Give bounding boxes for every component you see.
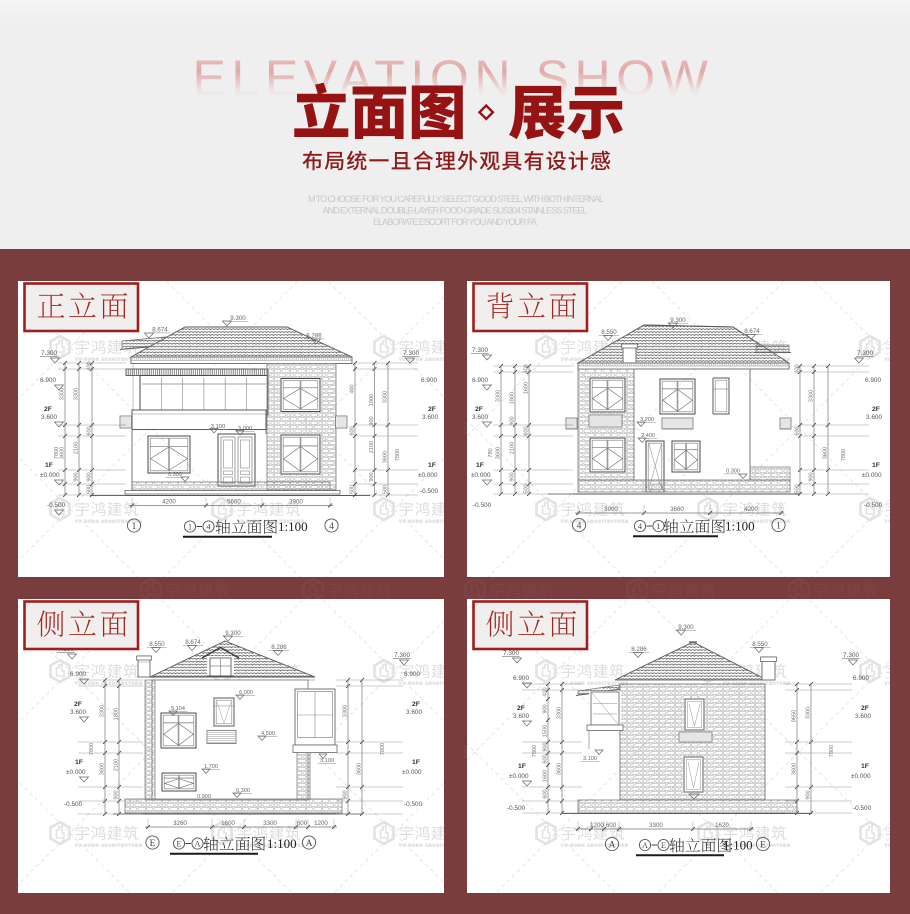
svg-text:7800: 7800 [54, 447, 60, 459]
svg-text:8.674: 8.674 [152, 327, 168, 334]
svg-text:3300: 3300 [383, 391, 389, 403]
svg-text:8.286: 8.286 [271, 644, 287, 651]
svg-text:1:100: 1:100 [278, 519, 308, 534]
svg-text:7.300: 7.300 [403, 350, 419, 357]
svg-text:2F: 2F [861, 705, 869, 712]
svg-text:600: 600 [543, 789, 549, 798]
svg-text:4: 4 [638, 522, 642, 531]
svg-text:0.300: 0.300 [168, 472, 182, 478]
svg-text:3600: 3600 [823, 447, 829, 459]
svg-text:900: 900 [510, 416, 516, 425]
svg-text:7.300: 7.300 [503, 650, 519, 657]
svg-text:3600: 3600 [557, 763, 563, 775]
svg-text:±0.000: ±0.000 [418, 472, 438, 479]
svg-text:A: A [195, 839, 201, 848]
svg-text:3300: 3300 [263, 820, 277, 827]
svg-text:1F: 1F [75, 759, 83, 766]
svg-text:900: 900 [87, 472, 93, 481]
svg-text:2F: 2F [872, 406, 880, 413]
svg-text:3300: 3300 [809, 390, 815, 402]
svg-text:-0.500: -0.500 [853, 805, 872, 812]
svg-text:1F: 1F [861, 763, 869, 770]
svg-text:±0.000: ±0.000 [40, 472, 60, 479]
svg-text:500: 500 [524, 484, 530, 493]
svg-text:9650: 9650 [792, 710, 798, 722]
svg-text:3600: 3600 [792, 763, 798, 775]
svg-text:3300: 3300 [649, 822, 663, 829]
svg-text:4200: 4200 [162, 498, 176, 505]
svg-text:3.100: 3.100 [320, 758, 334, 764]
svg-text:1600: 1600 [543, 770, 549, 782]
svg-text:1200: 1200 [314, 820, 328, 827]
svg-text:1:100: 1:100 [725, 519, 755, 534]
svg-text:1: 1 [776, 521, 781, 531]
svg-text:E: E [150, 839, 156, 849]
svg-text:3.100: 3.100 [211, 424, 226, 430]
svg-text:A: A [306, 839, 313, 849]
svg-text:0.300: 0.300 [726, 469, 740, 475]
svg-text:400: 400 [795, 364, 801, 373]
svg-text:-0.500: -0.500 [64, 801, 83, 808]
svg-text:780: 780 [488, 448, 494, 457]
svg-text:900: 900 [806, 790, 812, 799]
svg-text:1F: 1F [412, 759, 420, 766]
svg-text:1500: 1500 [543, 725, 549, 737]
svg-text:400: 400 [350, 384, 356, 393]
svg-text:3600: 3600 [383, 451, 389, 463]
svg-text:600: 600 [524, 426, 530, 435]
svg-text:3600: 3600 [60, 447, 66, 459]
svg-text:±0.000: ±0.000 [402, 769, 422, 776]
svg-text:3300: 3300 [100, 705, 106, 717]
svg-text:-0.500: -0.500 [864, 502, 883, 509]
svg-text:±0.000: ±0.000 [509, 773, 529, 780]
svg-text:600: 600 [795, 426, 801, 435]
svg-text:-0.500: -0.500 [507, 805, 526, 812]
svg-text:3.600: 3.600 [422, 414, 438, 421]
svg-text:3300: 3300 [806, 707, 812, 719]
svg-text:2F: 2F [517, 705, 525, 712]
svg-text:900: 900 [543, 704, 549, 713]
svg-text:600: 600 [297, 820, 308, 827]
svg-text:9.300: 9.300 [230, 315, 246, 322]
svg-text:1: 1 [188, 522, 192, 531]
svg-text:3600: 3600 [100, 763, 106, 775]
svg-text:8.550: 8.550 [601, 329, 617, 336]
svg-text:3300: 3300 [557, 707, 563, 719]
svg-text:900: 900 [369, 416, 375, 425]
svg-text:7.300: 7.300 [394, 652, 410, 659]
svg-text:600: 600 [606, 822, 617, 829]
svg-text:1: 1 [657, 522, 661, 531]
svg-text:900: 900 [114, 790, 120, 799]
svg-text:2F: 2F [475, 406, 483, 413]
svg-text:3.600: 3.600 [513, 713, 529, 720]
svg-text:3300: 3300 [74, 388, 80, 400]
svg-text:6.900: 6.900 [865, 377, 881, 384]
svg-text:1F: 1F [476, 462, 484, 469]
svg-text:6.900: 6.900 [472, 377, 488, 384]
svg-text:3.600: 3.600 [855, 713, 871, 720]
svg-text:3.600: 3.600 [866, 414, 882, 421]
svg-text:1:100: 1:100 [723, 838, 753, 853]
svg-text:2100: 2100 [74, 442, 80, 454]
svg-text:A: A [609, 840, 616, 850]
svg-text:7800: 7800 [89, 743, 95, 755]
svg-text:1200: 1200 [590, 822, 604, 829]
svg-text:600: 600 [350, 426, 356, 435]
svg-text:-0.500: -0.500 [420, 488, 439, 495]
svg-text:900: 900 [343, 790, 349, 799]
svg-text:7.300: 7.300 [843, 652, 859, 659]
svg-text:±0.000: ±0.000 [471, 472, 491, 479]
svg-text:3600: 3600 [357, 763, 363, 775]
svg-text:3600: 3600 [496, 447, 502, 459]
svg-text:±0.000: ±0.000 [862, 472, 882, 479]
svg-text:8.286: 8.286 [306, 333, 322, 340]
svg-text:6.900: 6.900 [404, 671, 420, 678]
svg-text:8.674: 8.674 [185, 639, 201, 646]
svg-text:1: 1 [132, 522, 137, 532]
svg-text:5660: 5660 [227, 498, 241, 505]
svg-text:-0.500: -0.500 [47, 502, 66, 509]
svg-text:7800: 7800 [829, 745, 835, 757]
svg-text:6.900: 6.900 [853, 675, 869, 682]
svg-text:-0.500: -0.500 [473, 502, 492, 509]
svg-text:1F: 1F [518, 763, 526, 770]
svg-text:1600: 1600 [221, 820, 235, 827]
svg-text:3300: 3300 [496, 390, 502, 402]
svg-text:7.300: 7.300 [41, 350, 57, 357]
svg-text:400: 400 [524, 364, 530, 373]
svg-text:900: 900 [543, 742, 549, 751]
svg-text:500: 500 [795, 484, 801, 493]
svg-text:ELABORATE ESCORT FOR YOU AND Y: ELABORATE ESCORT FOR YOU AND YOUR FA [373, 217, 538, 227]
svg-text:1800: 1800 [369, 394, 375, 406]
svg-text:1:100: 1:100 [267, 836, 297, 851]
svg-text:900: 900 [74, 472, 80, 481]
svg-text:7800: 7800 [532, 745, 538, 757]
svg-text:2F: 2F [44, 406, 52, 413]
svg-text:1620: 1620 [715, 822, 729, 829]
svg-text:±0.000: ±0.000 [851, 773, 871, 780]
svg-text:900: 900 [809, 472, 815, 481]
svg-text:900: 900 [510, 472, 516, 481]
svg-text:1F: 1F [428, 462, 436, 469]
svg-text:400: 400 [543, 687, 549, 696]
svg-text:6.900: 6.900 [513, 675, 529, 682]
svg-text:±0.000: ±0.000 [66, 769, 86, 776]
svg-text:8.674: 8.674 [744, 328, 760, 335]
svg-text:500: 500 [383, 485, 389, 494]
svg-text:900: 900 [369, 472, 375, 481]
svg-text:2F: 2F [428, 406, 436, 413]
svg-text:6.900: 6.900 [40, 377, 56, 384]
svg-text:M TO CHOOSE FOR YOU CAREFULLY: M TO CHOOSE FOR YOU CAREFULLY SELECT GOO… [308, 194, 604, 204]
svg-text:1800: 1800 [114, 708, 120, 720]
svg-text:3900: 3900 [289, 498, 303, 505]
svg-text:1F: 1F [45, 462, 53, 469]
svg-text:3.600: 3.600 [406, 709, 422, 716]
svg-text:4: 4 [577, 521, 582, 531]
svg-text:8.550: 8.550 [149, 641, 165, 648]
svg-text:1F: 1F [872, 462, 880, 469]
svg-text:8.286: 8.286 [631, 646, 647, 653]
svg-text:3660: 3660 [670, 506, 684, 513]
svg-text:2F: 2F [74, 701, 82, 708]
svg-text:6.900: 6.900 [421, 377, 437, 384]
svg-text:3260: 3260 [173, 820, 187, 827]
svg-text:1600: 1600 [524, 382, 530, 394]
svg-text:2100: 2100 [114, 759, 120, 771]
svg-text:E: E [760, 840, 766, 850]
svg-text:AND EXTERNAL DOUBLE-LAYER FOOD: AND EXTERNAL DOUBLE-LAYER FOOD-GRADE SUS… [323, 206, 588, 216]
svg-text:-0.500: -0.500 [404, 801, 423, 808]
svg-text:3.100: 3.100 [583, 756, 597, 762]
svg-text:3900: 3900 [604, 506, 618, 513]
svg-text:2100: 2100 [369, 441, 375, 453]
svg-text:7800: 7800 [395, 449, 401, 461]
svg-text:500: 500 [87, 485, 93, 494]
svg-text:3.600: 3.600 [472, 414, 488, 421]
svg-text:3.600: 3.600 [70, 709, 86, 716]
svg-text:6.900: 6.900 [70, 671, 86, 678]
svg-text:8.550: 8.550 [752, 641, 768, 648]
svg-text:E: E [661, 841, 666, 850]
svg-text:2100: 2100 [510, 442, 516, 454]
svg-text:600: 600 [543, 754, 549, 763]
svg-text:400: 400 [87, 361, 93, 370]
svg-text:2F: 2F [412, 701, 420, 708]
svg-text:7.300: 7.300 [857, 350, 873, 357]
svg-text:1800: 1800 [510, 392, 516, 404]
svg-text:E: E [177, 839, 182, 848]
svg-text:7.300: 7.300 [472, 347, 488, 354]
svg-text:3300: 3300 [60, 388, 66, 400]
svg-text:600: 600 [87, 426, 93, 435]
svg-text:4200: 4200 [744, 506, 758, 513]
svg-text:3.000: 3.000 [238, 426, 253, 432]
svg-text:500: 500 [350, 485, 356, 494]
svg-text:7800: 7800 [841, 449, 847, 461]
svg-text:3300: 3300 [343, 705, 349, 717]
svg-text:7800: 7800 [380, 743, 386, 755]
svg-text:A: A [642, 841, 648, 850]
svg-text:4: 4 [329, 522, 334, 532]
svg-text:4: 4 [207, 522, 211, 531]
svg-text:3.600: 3.600 [41, 414, 57, 421]
